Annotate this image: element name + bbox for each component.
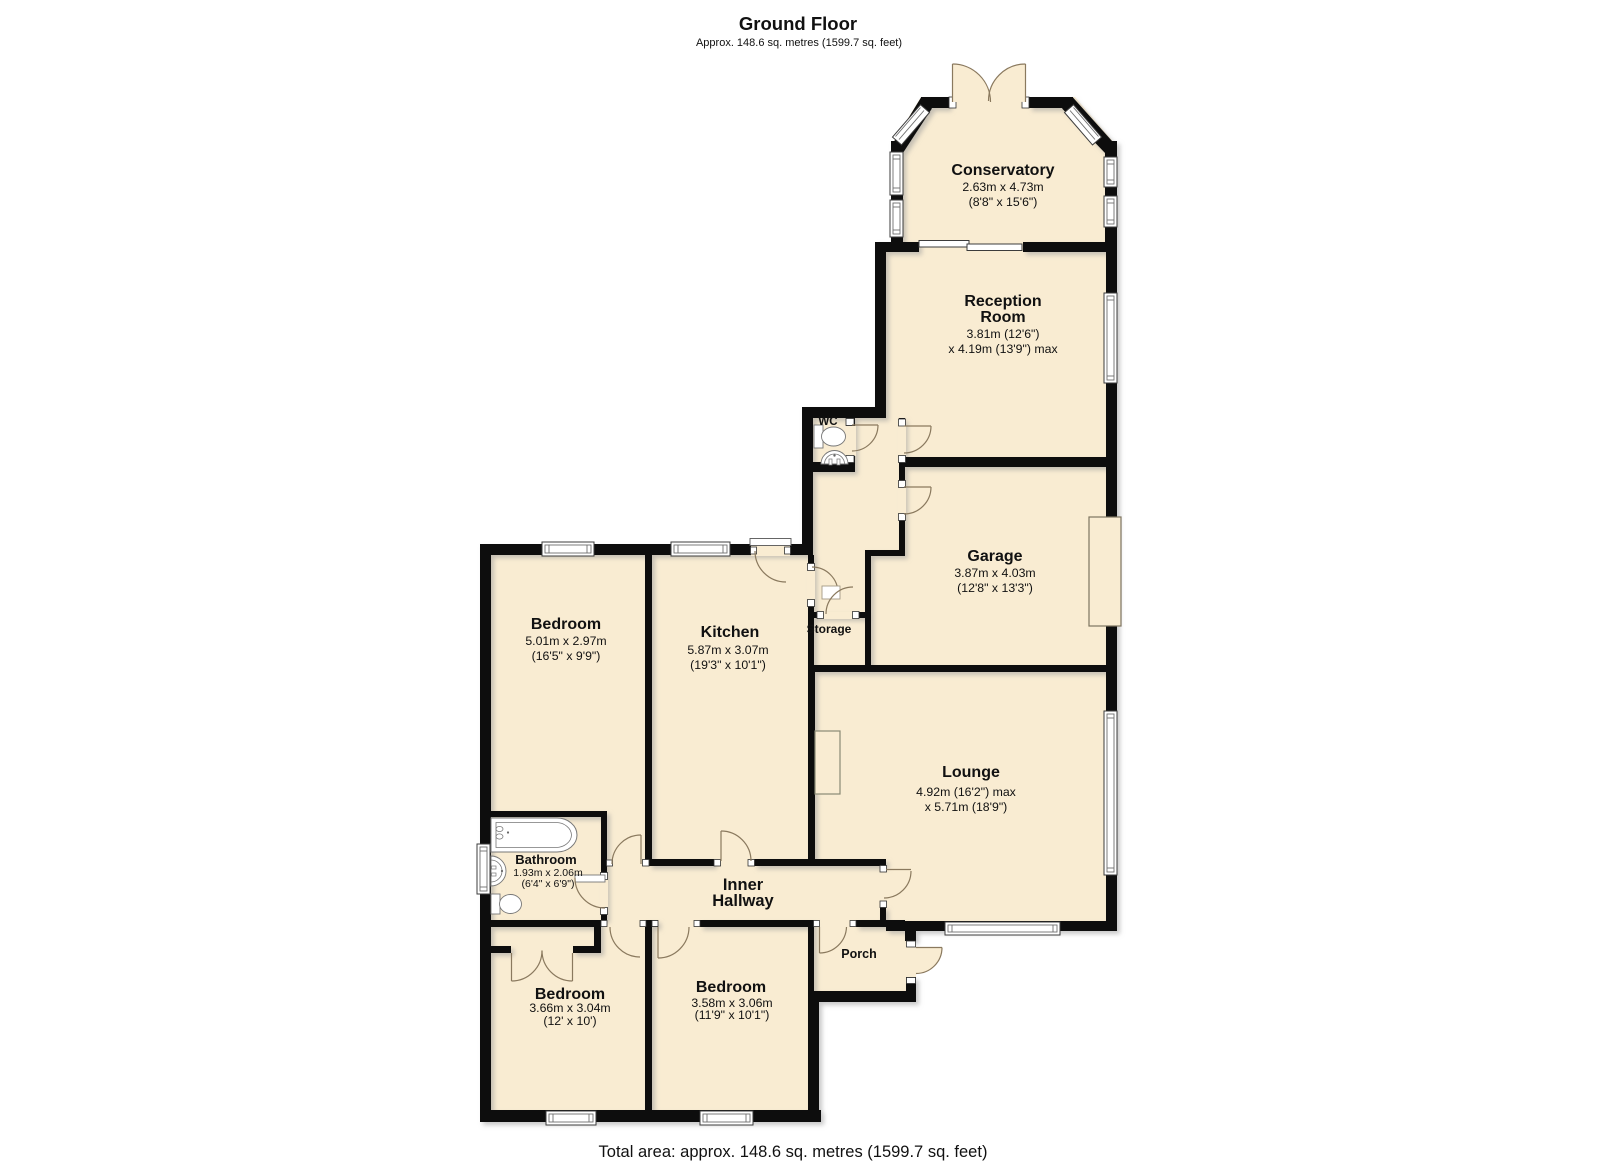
svg-text:Room: Room bbox=[980, 309, 1025, 326]
svg-text:Porch: Porch bbox=[841, 947, 876, 961]
svg-text:5.87m x 3.07m: 5.87m x 3.07m bbox=[687, 643, 768, 657]
svg-text:3.66m x 3.04m: 3.66m x 3.04m bbox=[529, 1001, 610, 1015]
svg-text:Total area: approx. 148.6 sq.: Total area: approx. 148.6 sq. metres (15… bbox=[599, 1143, 988, 1161]
svg-text:4.92m (16'2") max: 4.92m (16'2") max bbox=[916, 785, 1017, 799]
svg-text:5.01m x 2.97m: 5.01m x 2.97m bbox=[525, 634, 606, 648]
svg-text:3.81m (12'6"): 3.81m (12'6") bbox=[966, 327, 1039, 341]
svg-text:Garage: Garage bbox=[967, 548, 1022, 565]
svg-text:Bedroom: Bedroom bbox=[531, 616, 601, 633]
svg-text:WC: WC bbox=[818, 416, 837, 428]
svg-text:(19'3" x 10'1"): (19'3" x 10'1") bbox=[690, 658, 766, 672]
svg-text:Hallway: Hallway bbox=[712, 892, 774, 910]
svg-text:(12' x 10'): (12' x 10') bbox=[543, 1014, 596, 1028]
svg-text:3.87m x 4.03m: 3.87m x 4.03m bbox=[954, 566, 1035, 580]
svg-text:2.63m x 4.73m: 2.63m x 4.73m bbox=[962, 180, 1043, 194]
svg-text:Lounge: Lounge bbox=[942, 764, 1000, 781]
svg-text:Approx. 148.6 sq. metres (1599: Approx. 148.6 sq. metres (1599.7 sq. fee… bbox=[696, 37, 902, 49]
svg-text:x 5.71m (18'9"): x 5.71m (18'9") bbox=[925, 800, 1008, 814]
svg-text:(11'9" x 10'1"): (11'9" x 10'1") bbox=[695, 1008, 770, 1022]
svg-text:(6'4" x 6'9"): (6'4" x 6'9") bbox=[522, 878, 575, 890]
svg-text:Kitchen: Kitchen bbox=[701, 624, 760, 641]
svg-text:Bathroom: Bathroom bbox=[515, 852, 576, 867]
svg-text:Reception: Reception bbox=[964, 293, 1041, 310]
svg-text:Storage: Storage bbox=[807, 622, 852, 636]
svg-text:x 4.19m (13'9") max: x 4.19m (13'9") max bbox=[948, 342, 1058, 356]
svg-text:Ground Floor: Ground Floor bbox=[739, 13, 857, 34]
svg-text:Bedroom: Bedroom bbox=[696, 979, 766, 996]
svg-text:(16'5" x 9'9"): (16'5" x 9'9") bbox=[532, 649, 601, 663]
svg-text:(8'8" x 15'6"): (8'8" x 15'6") bbox=[969, 195, 1038, 209]
svg-text:Conservatory: Conservatory bbox=[951, 162, 1054, 179]
svg-text:(12'8" x 13'3"): (12'8" x 13'3") bbox=[957, 581, 1033, 595]
